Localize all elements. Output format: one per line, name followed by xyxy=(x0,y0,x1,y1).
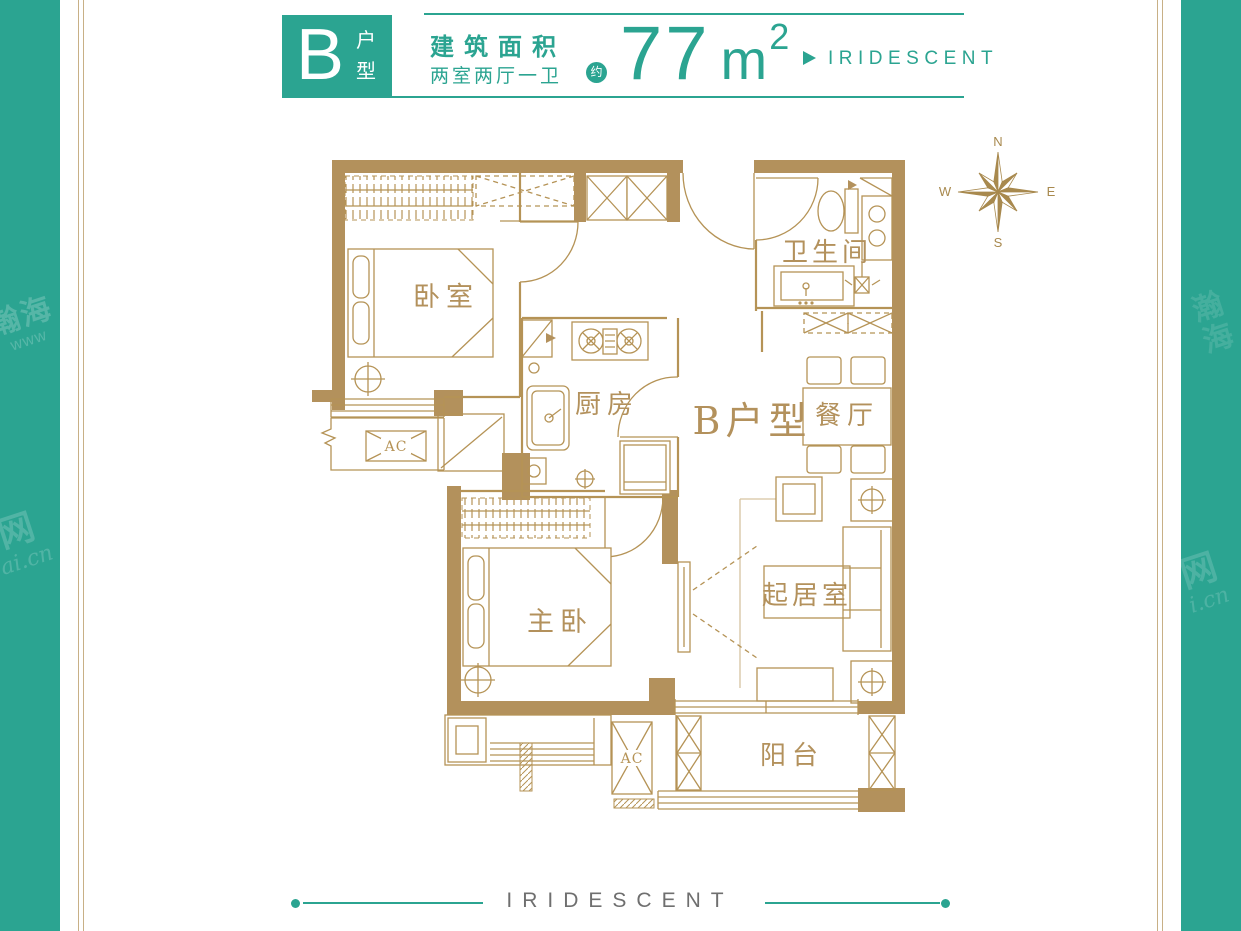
plan-unit-label: B户型 xyxy=(693,399,812,443)
ac-platform-left: AC xyxy=(322,418,444,470)
balcony: AC 阳台 xyxy=(612,716,895,794)
entry-cabinets xyxy=(587,176,667,220)
balcony-label: 阳台 xyxy=(760,741,824,771)
bedroom-label: 卧室 xyxy=(413,282,479,313)
left-ac-label: AC xyxy=(384,439,408,455)
dining-room: 餐厅 xyxy=(803,357,891,473)
master-bedroom: 主卧 xyxy=(461,498,611,697)
dining-label: 餐厅 xyxy=(815,401,879,431)
bathroom-label: 卫生间 xyxy=(782,238,872,268)
kitchen: 厨房 xyxy=(522,320,670,494)
floor-plan: 卧室 厨房 xyxy=(0,0,1241,931)
floorplan-page: 瀚海 www 网 ai.cn 瀚海 网 i.cn B 户 型 建筑面积 两室两厅… xyxy=(0,0,1241,931)
footer-line-left xyxy=(303,902,483,904)
footer-dot-left xyxy=(291,899,300,908)
footer-line-right xyxy=(765,902,940,904)
balcony-ac-label: AC xyxy=(620,751,644,767)
kitchen-label: 厨房 xyxy=(575,390,639,420)
master-bedroom-label: 主卧 xyxy=(527,607,593,638)
living-room: 起居室 xyxy=(678,477,893,703)
footer-dot-right xyxy=(941,899,950,908)
bedroom: 卧室 xyxy=(345,176,574,396)
brand-footer: IRIDESCENT xyxy=(470,889,770,913)
bathroom: 卫生间 xyxy=(774,178,892,333)
living-room-label: 起居室 xyxy=(762,581,852,611)
